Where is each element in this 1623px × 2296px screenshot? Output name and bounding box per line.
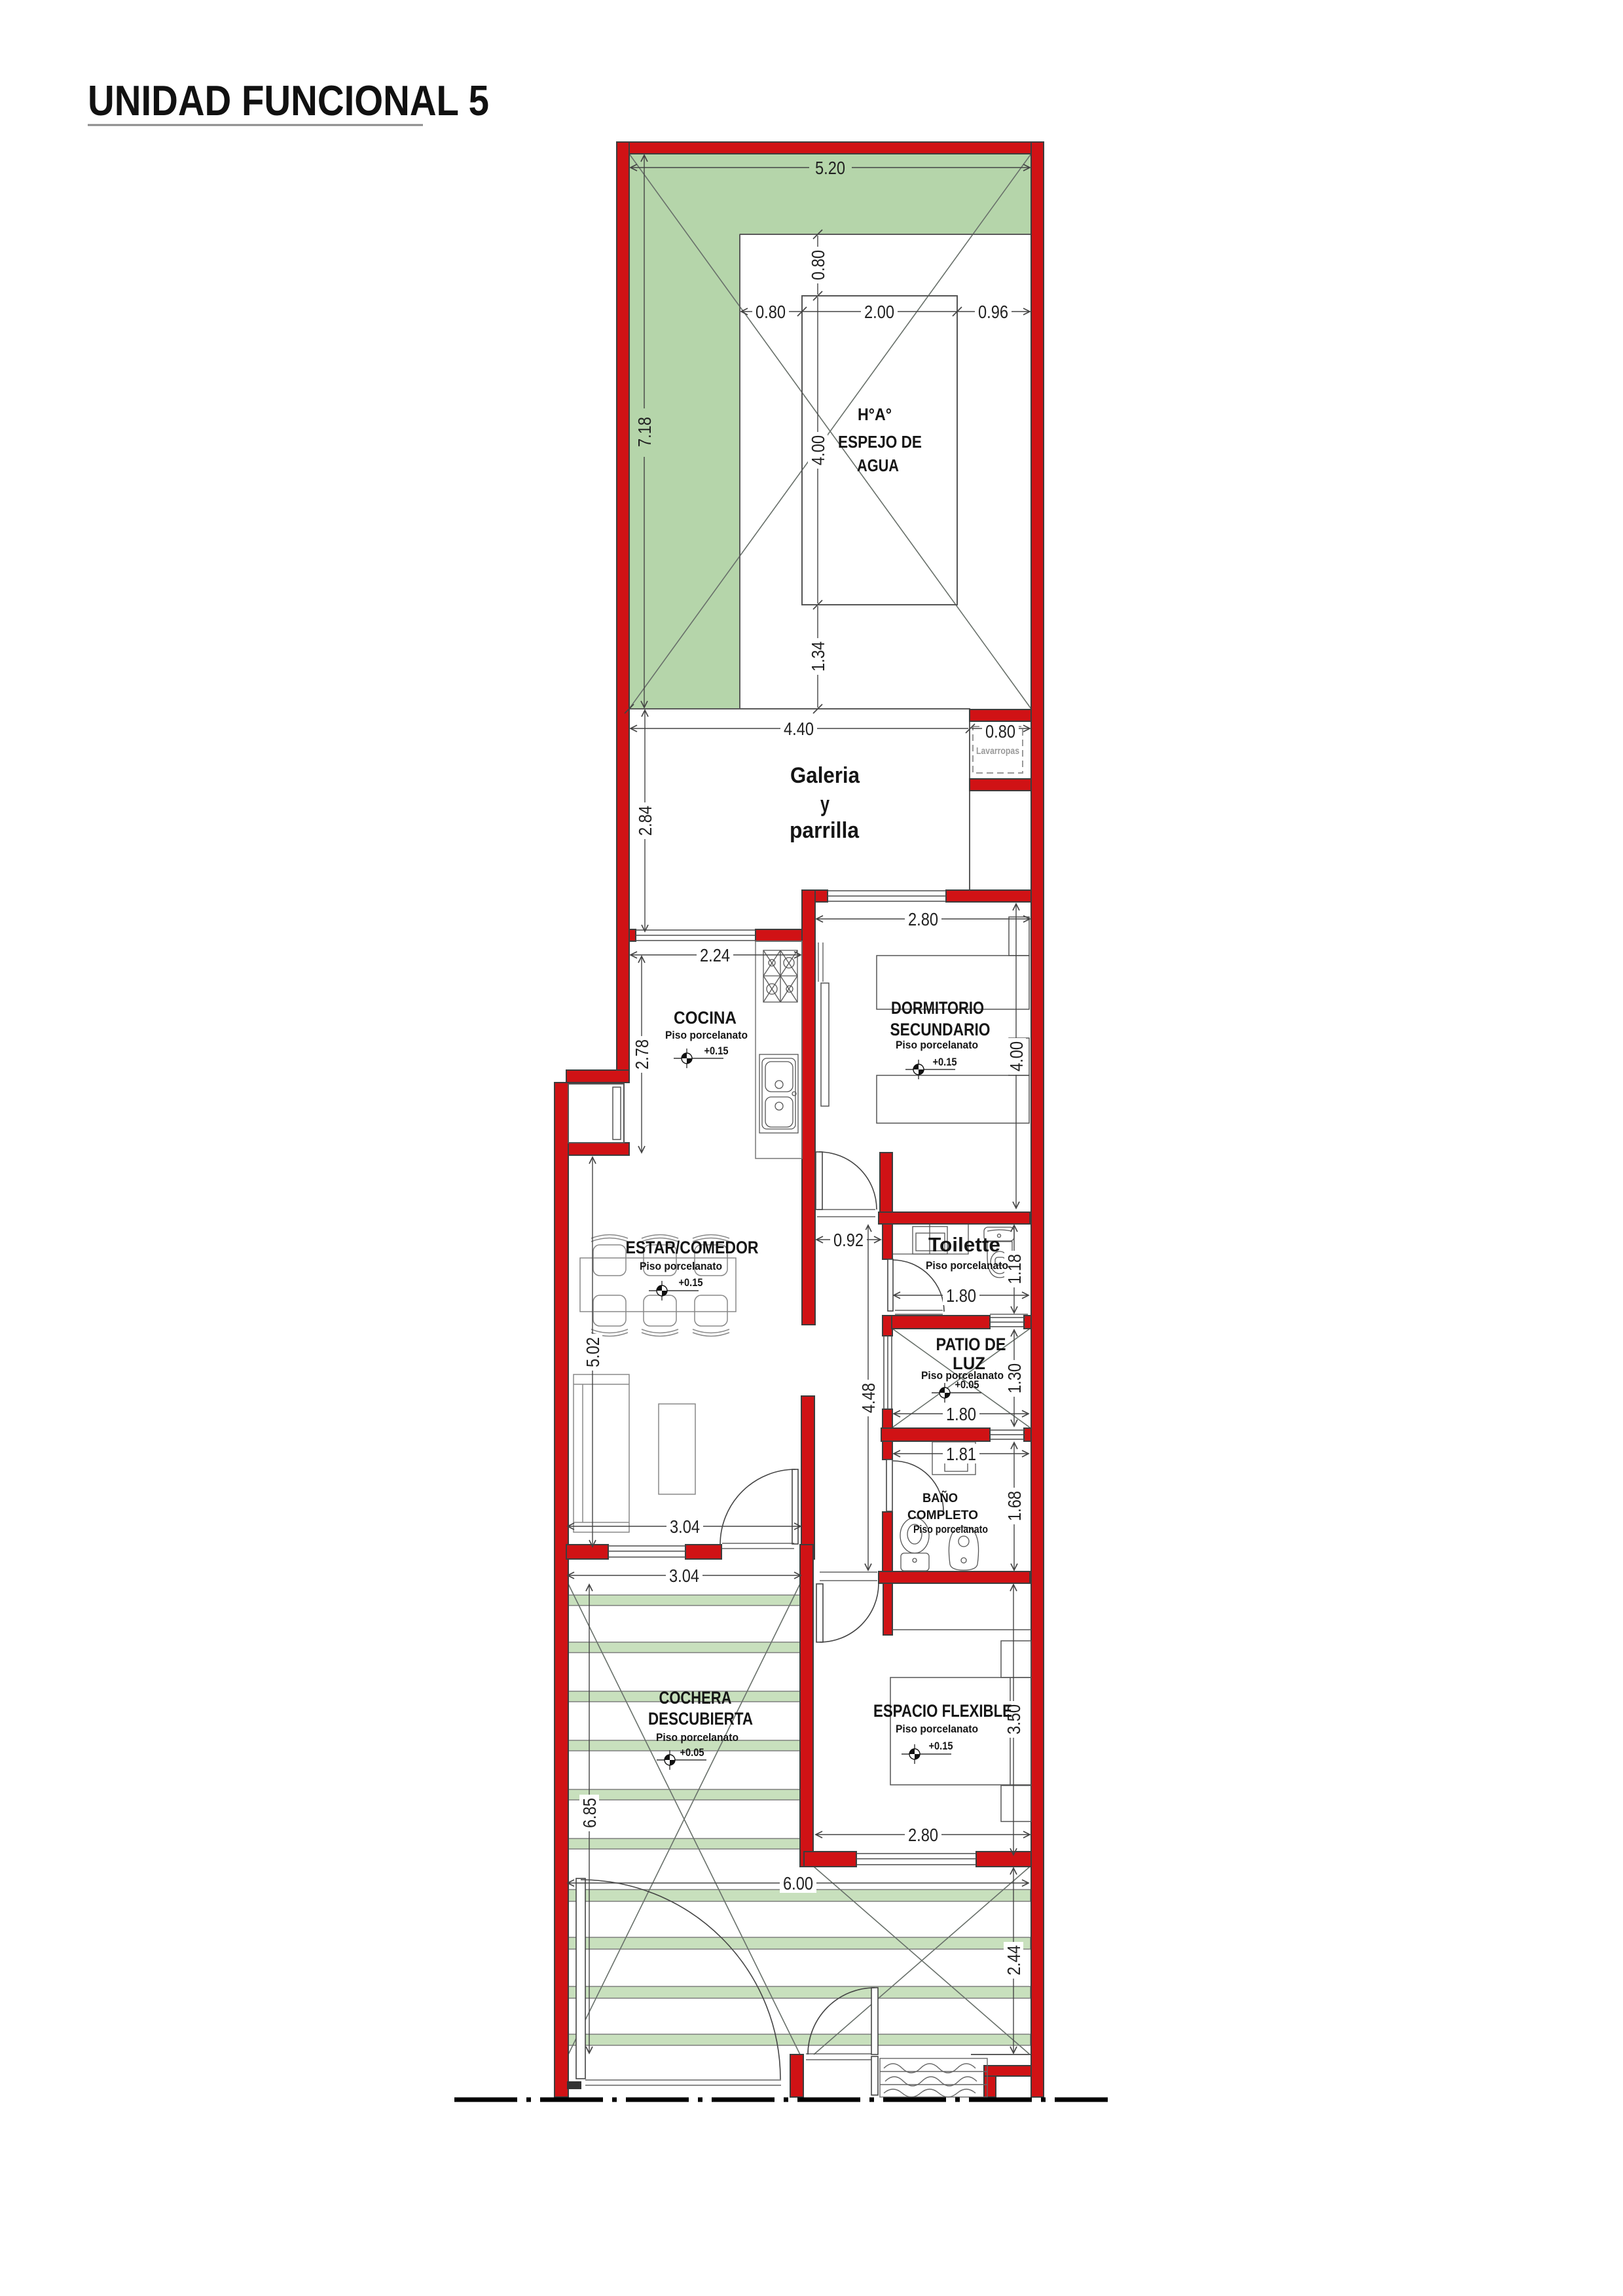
svg-text:0.92: 0.92 xyxy=(833,1230,864,1250)
svg-text:AGUA: AGUA xyxy=(857,456,899,475)
svg-text:4.00: 4.00 xyxy=(808,435,828,465)
svg-text:5.02: 5.02 xyxy=(583,1337,603,1367)
svg-text:Piso porcelanato: Piso porcelanato xyxy=(665,1029,748,1041)
svg-text:+0.15: +0.15 xyxy=(933,1056,957,1068)
svg-text:4.00: 4.00 xyxy=(1006,1041,1027,1071)
svg-text:Galeria: Galeria xyxy=(790,763,860,788)
svg-text:parrilla: parrilla xyxy=(790,818,860,843)
svg-text:BAÑO: BAÑO xyxy=(922,1491,958,1505)
svg-text:0.96: 0.96 xyxy=(978,302,1008,322)
svg-text:COMPLETO: COMPLETO xyxy=(907,1509,978,1522)
svg-text:COCHERA: COCHERA xyxy=(659,1688,732,1708)
svg-text:UNIDAD FUNCIONAL 5: UNIDAD FUNCIONAL 5 xyxy=(88,77,489,124)
svg-text:0.80: 0.80 xyxy=(808,250,828,280)
svg-text:+0.05: +0.05 xyxy=(955,1378,979,1391)
svg-text:Piso porcelanato: Piso porcelanato xyxy=(896,1039,978,1051)
svg-text:2.80: 2.80 xyxy=(908,1825,938,1845)
svg-text:DESCUBIERTA: DESCUBIERTA xyxy=(648,1709,753,1729)
svg-text:3.04: 3.04 xyxy=(669,1566,699,1586)
svg-text:COCINA: COCINA xyxy=(674,1008,737,1028)
svg-text:Piso porcelanato: Piso porcelanato xyxy=(640,1260,722,1272)
svg-text:0.80: 0.80 xyxy=(756,302,786,322)
svg-text:1.80: 1.80 xyxy=(946,1404,976,1424)
svg-text:y: y xyxy=(820,792,830,817)
svg-text:1.30: 1.30 xyxy=(1004,1363,1025,1393)
svg-text:5.20: 5.20 xyxy=(815,158,845,178)
svg-text:H°A°: H°A° xyxy=(858,404,892,424)
svg-text:Piso porcelanato: Piso porcelanato xyxy=(656,1731,739,1744)
svg-text:1.81: 1.81 xyxy=(946,1444,976,1464)
svg-text:0.80: 0.80 xyxy=(985,721,1015,742)
svg-text:1.34: 1.34 xyxy=(808,641,828,672)
svg-text:ESPACIO FLEXIBLE: ESPACIO FLEXIBLE xyxy=(873,1701,1012,1721)
svg-text:7.18: 7.18 xyxy=(634,417,655,447)
svg-text:4.48: 4.48 xyxy=(858,1383,879,1413)
svg-text:2.44: 2.44 xyxy=(1004,1945,1024,1975)
svg-text:Lavarropas: Lavarropas xyxy=(976,745,1019,757)
svg-text:2.24: 2.24 xyxy=(700,945,730,965)
svg-text:ESTAR/COMEDOR: ESTAR/COMEDOR xyxy=(626,1238,759,1257)
svg-text:Piso porcelanato: Piso porcelanato xyxy=(926,1259,1008,1272)
svg-text:Piso porcelanato: Piso porcelanato xyxy=(913,1523,988,1535)
svg-text:+0.15: +0.15 xyxy=(929,1740,953,1752)
svg-text:PATIO DE: PATIO DE xyxy=(936,1335,1006,1354)
svg-text:+0.15: +0.15 xyxy=(704,1045,729,1057)
svg-text:2.84: 2.84 xyxy=(635,806,655,836)
svg-text:2.00: 2.00 xyxy=(864,302,894,322)
svg-text:Toilette: Toilette xyxy=(928,1233,1000,1256)
svg-text:+0.05: +0.05 xyxy=(680,1746,704,1759)
svg-text:+0.15: +0.15 xyxy=(679,1276,703,1289)
svg-text:6.85: 6.85 xyxy=(579,1798,600,1828)
svg-text:SECUNDARIO: SECUNDARIO xyxy=(890,1020,991,1039)
svg-text:ESPEJO DE: ESPEJO DE xyxy=(838,432,922,452)
svg-text:4.40: 4.40 xyxy=(784,719,814,739)
svg-text:1.68: 1.68 xyxy=(1004,1491,1025,1521)
svg-text:3.04: 3.04 xyxy=(670,1516,700,1537)
svg-text:1.80: 1.80 xyxy=(946,1285,976,1306)
svg-text:6.00: 6.00 xyxy=(783,1873,813,1893)
svg-text:2.78: 2.78 xyxy=(632,1039,652,1069)
svg-text:Piso porcelanato: Piso porcelanato xyxy=(896,1723,978,1735)
svg-text:2.80: 2.80 xyxy=(908,909,938,929)
svg-text:DORMITORIO: DORMITORIO xyxy=(891,998,984,1018)
